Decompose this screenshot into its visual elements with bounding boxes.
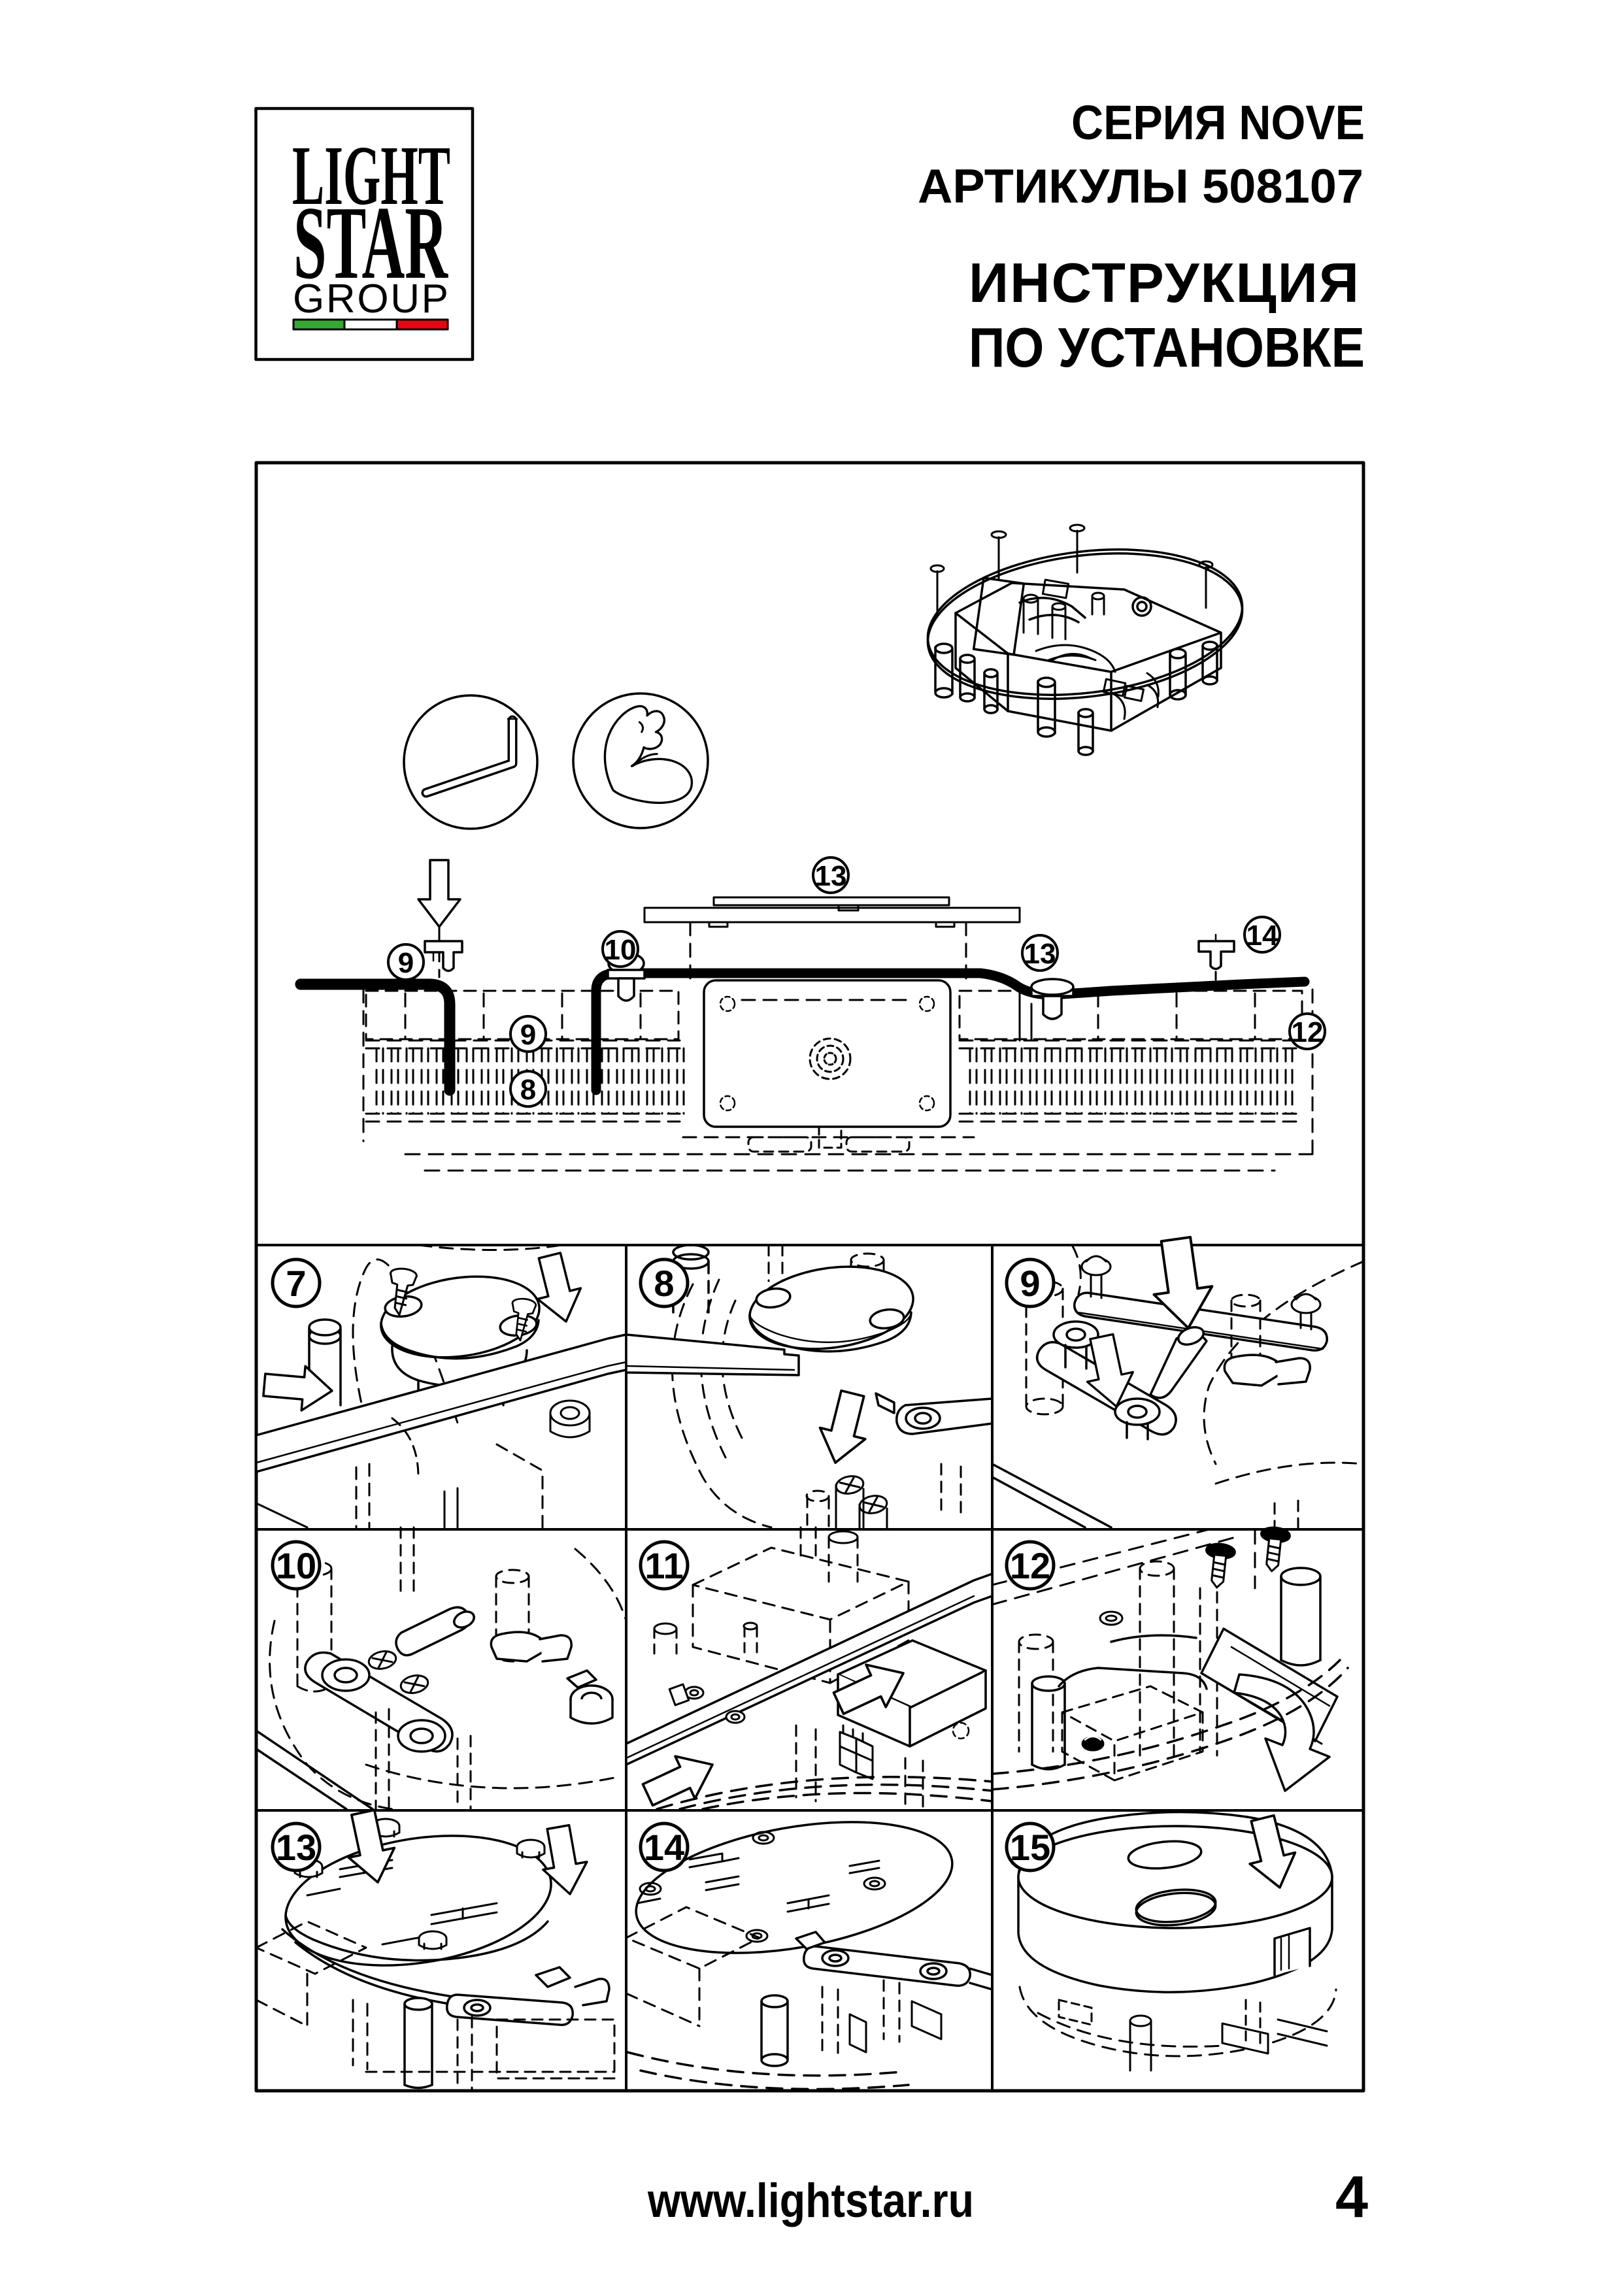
svg-text:СЕРИЯ NOVE: СЕРИЯ NOVE xyxy=(1071,95,1365,150)
svg-text:8: 8 xyxy=(654,1263,674,1304)
svg-text:13: 13 xyxy=(1024,938,1056,970)
svg-text:10: 10 xyxy=(605,934,637,966)
svg-text:9: 9 xyxy=(398,947,414,979)
svg-text:13: 13 xyxy=(276,1827,316,1868)
svg-text:8: 8 xyxy=(520,1074,536,1106)
svg-text:4: 4 xyxy=(1335,2165,1368,2230)
svg-text:13: 13 xyxy=(815,860,847,892)
svg-text:15: 15 xyxy=(1010,1827,1050,1868)
svg-text:12: 12 xyxy=(1010,1545,1050,1586)
svg-text:9: 9 xyxy=(1020,1263,1040,1304)
svg-text:www.lightstar.ru: www.lightstar.ru xyxy=(647,2174,974,2227)
svg-text:9: 9 xyxy=(520,1019,536,1051)
svg-text:GROUP: GROUP xyxy=(293,276,448,322)
svg-text:14: 14 xyxy=(1246,920,1278,952)
svg-text:ПО УСТАНОВКЕ: ПО УСТАНОВКЕ xyxy=(969,317,1365,379)
svg-text:11: 11 xyxy=(644,1545,683,1586)
svg-text:7: 7 xyxy=(286,1263,306,1304)
svg-text:14: 14 xyxy=(644,1827,684,1868)
svg-text:12: 12 xyxy=(1292,1016,1324,1048)
svg-text:10: 10 xyxy=(276,1545,316,1586)
svg-text:АРТИКУЛЫ 508107: АРТИКУЛЫ 508107 xyxy=(918,160,1363,213)
